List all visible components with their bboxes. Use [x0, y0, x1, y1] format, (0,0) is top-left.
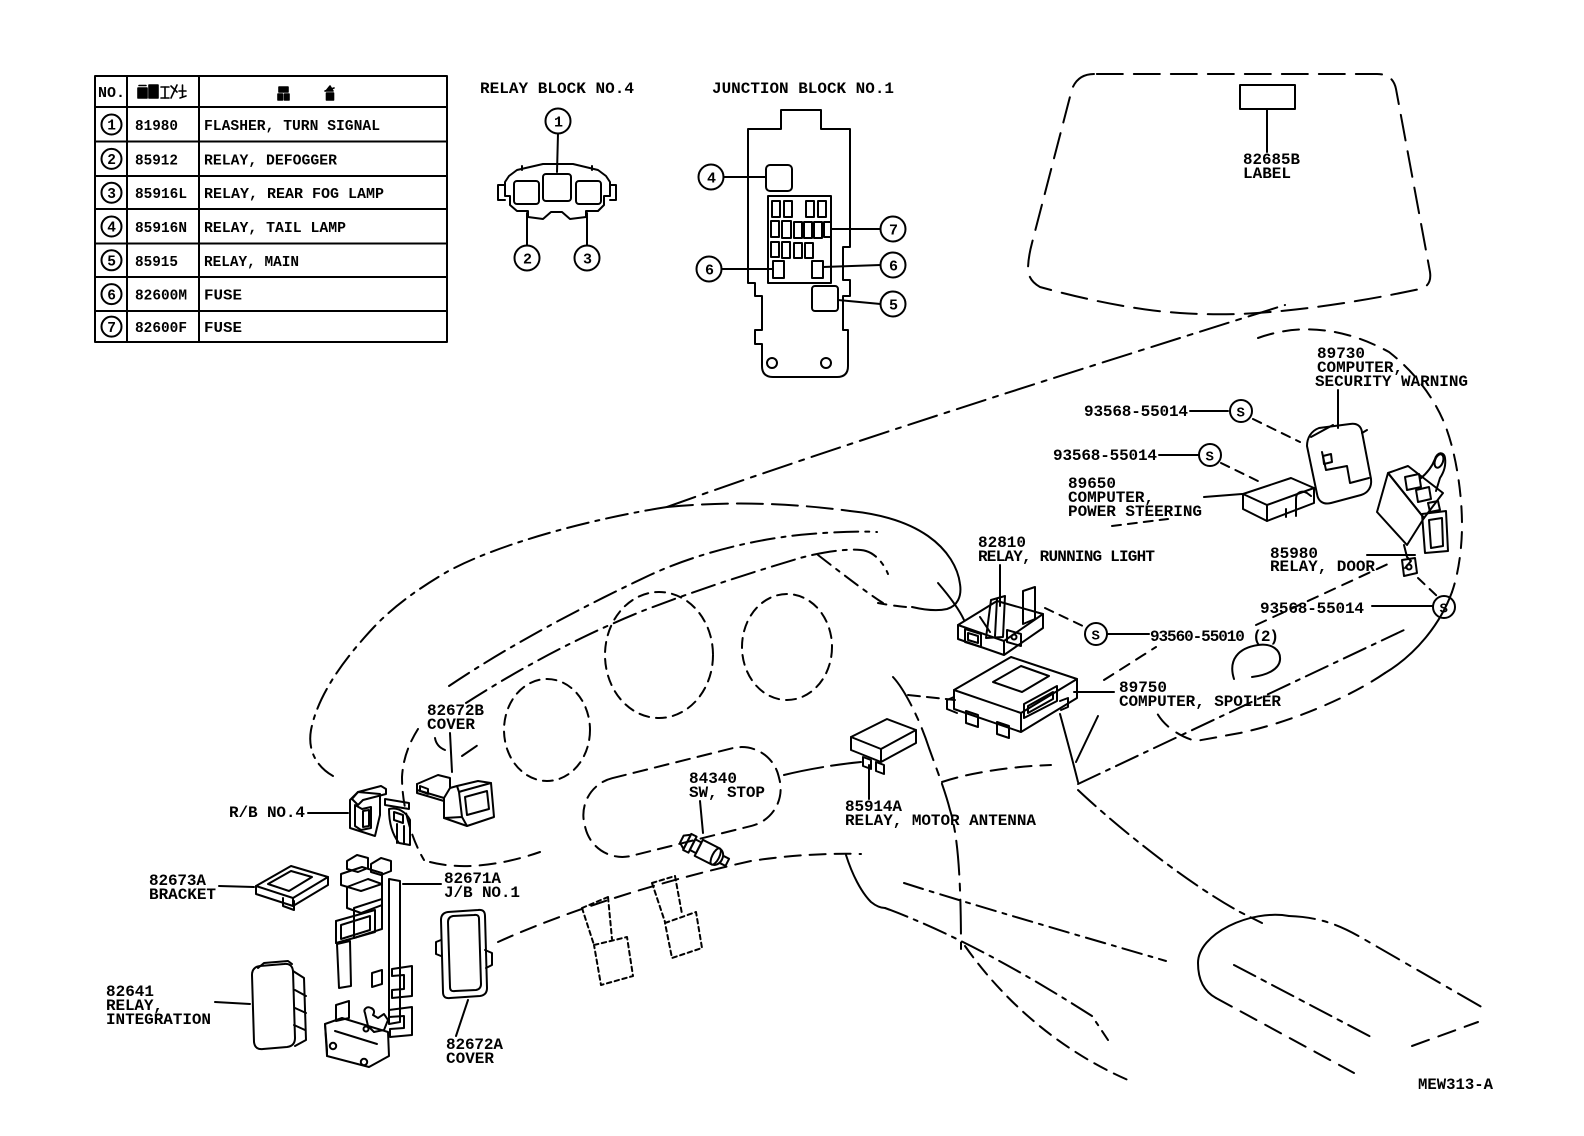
svg-text:5: 5	[889, 298, 898, 315]
svg-text:R/B NO.4: R/B NO.4	[229, 804, 305, 822]
svg-text:RELAY, MAIN: RELAY, MAIN	[204, 254, 299, 271]
svg-text:93560-55010 (2): 93560-55010 (2)	[1150, 628, 1279, 646]
svg-text:RELAY, DEFOGGER: RELAY, DEFOGGER	[204, 152, 337, 169]
svg-text:85916L: 85916L	[135, 186, 187, 203]
svg-text:BRACKET: BRACKET	[149, 886, 216, 904]
svg-text:POWER STEERING: POWER STEERING	[1068, 503, 1202, 521]
svg-text:81980: 81980	[135, 118, 178, 135]
svg-text:S: S	[1440, 602, 1448, 618]
svg-text:INTEGRATION: INTEGRATION	[106, 1011, 211, 1029]
svg-text:1: 1	[554, 115, 563, 132]
svg-text:RELAY, MOTOR ANTENNA: RELAY, MOTOR ANTENNA	[845, 812, 1036, 830]
svg-text:3: 3	[583, 252, 592, 269]
svg-text:LABEL: LABEL	[1243, 165, 1291, 183]
svg-text:93568-55014: 93568-55014	[1053, 447, 1157, 465]
svg-text:COVER: COVER	[446, 1050, 494, 1068]
svg-text:1: 1	[107, 119, 116, 135]
svg-text:82600M: 82600M	[135, 288, 187, 305]
svg-text:82600F: 82600F	[135, 320, 187, 337]
svg-text:COVER: COVER	[427, 716, 475, 734]
svg-text:RELAY, REAR FOG LAMP: RELAY, REAR FOG LAMP	[204, 186, 384, 203]
svg-text:S: S	[1206, 450, 1214, 466]
svg-text:6: 6	[705, 263, 714, 280]
svg-text:3: 3	[107, 187, 116, 203]
svg-text:93568-55014: 93568-55014	[1084, 403, 1188, 421]
svg-text:7: 7	[889, 223, 898, 240]
svg-text:SW, STOP: SW, STOP	[689, 784, 765, 802]
svg-text:RELAY, DOOR: RELAY, DOOR	[1270, 558, 1375, 576]
svg-text:85915: 85915	[135, 254, 178, 271]
svg-text:JUNCTION BLOCK NO.1: JUNCTION BLOCK NO.1	[712, 80, 894, 98]
svg-text:COMPUTER, SPOILER: COMPUTER, SPOILER	[1119, 693, 1281, 711]
svg-text:2: 2	[107, 153, 116, 169]
svg-text:RELAY, TAIL LAMP: RELAY, TAIL LAMP	[204, 220, 346, 237]
svg-text:85916N: 85916N	[135, 220, 187, 237]
svg-text:6: 6	[107, 288, 116, 304]
svg-text:J/B NO.1: J/B NO.1	[444, 884, 520, 902]
svg-text:S: S	[1237, 406, 1245, 422]
svg-text:S: S	[1092, 629, 1100, 645]
svg-text:2: 2	[523, 252, 532, 269]
svg-text:4: 4	[707, 171, 716, 188]
svg-text:4: 4	[107, 221, 116, 237]
svg-text:7: 7	[107, 321, 116, 337]
svg-text:6: 6	[889, 259, 898, 276]
svg-text:5: 5	[107, 255, 116, 271]
svg-text:FLASHER, TURN SIGNAL: FLASHER, TURN SIGNAL	[204, 118, 380, 135]
svg-text:FUSE: FUSE	[204, 288, 242, 305]
svg-text:FUSE: FUSE	[204, 320, 242, 337]
svg-text:85912: 85912	[135, 152, 178, 169]
svg-text:SECURITY WARNING: SECURITY WARNING	[1315, 373, 1468, 391]
svg-text:RELAY BLOCK NO.4: RELAY BLOCK NO.4	[480, 80, 634, 98]
svg-text:MEW313-A: MEW313-A	[1418, 1076, 1493, 1094]
svg-text:RELAY, RUNNING LIGHT: RELAY, RUNNING LIGHT	[978, 548, 1155, 566]
svg-text:NO.: NO.	[98, 85, 125, 102]
